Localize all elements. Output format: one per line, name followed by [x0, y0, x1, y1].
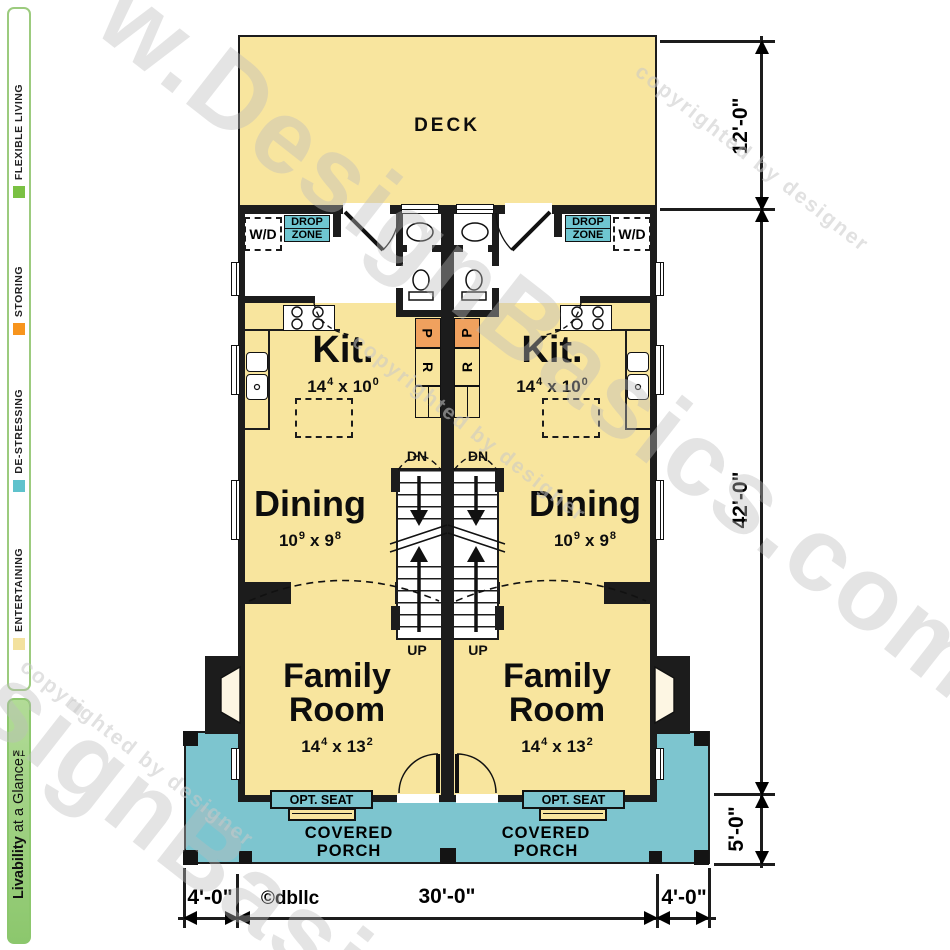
legend-label-flexible-living: FLEXIBLE LIVING	[13, 84, 25, 180]
left-opt-seat-label: OPT. SEAT	[290, 793, 354, 807]
dim-w: 14	[521, 737, 540, 756]
porch-post-br	[694, 850, 709, 865]
dim-w: 14	[516, 377, 535, 396]
left-porch-label: COVERED PORCH	[269, 824, 429, 861]
right-porch-line1: COVERED	[466, 824, 626, 842]
left-wd-label: W/D	[249, 226, 276, 242]
livability-banner-text: Livability at a Glance™	[11, 742, 27, 899]
right-porch-label: COVERED PORCH	[466, 824, 626, 861]
right-island	[542, 398, 600, 438]
right-stair-break-band	[454, 524, 497, 556]
porch-post-tl	[183, 731, 198, 746]
left-drop-zone: DROP ZONE	[284, 215, 330, 242]
left-bath-stub-b	[432, 245, 441, 252]
right-bath-bottom-wall	[454, 310, 499, 317]
left-bath-wall-lower	[396, 288, 403, 310]
right-kitchen-label: Kit.	[472, 332, 632, 369]
dim-ws: 4	[321, 736, 327, 748]
left-porch-line2: PORCH	[269, 842, 429, 860]
left-family-label-1: Family	[257, 660, 417, 693]
left-island	[295, 398, 353, 438]
dim-label-right-offset: 4'-0"	[654, 886, 714, 910]
right-stair-stub-top	[495, 468, 504, 492]
right-family-window	[655, 748, 664, 780]
left-mudroom-window	[231, 262, 240, 296]
right-wd-label: W/D	[618, 226, 645, 242]
right-kitchen-window	[655, 345, 664, 395]
left-seat-bench	[288, 808, 356, 821]
right-stair-stub-bottom	[495, 606, 504, 630]
right-bath-wall	[492, 214, 499, 266]
right-opt-seat: OPT. SEAT	[522, 790, 625, 809]
right-bath-stub-a	[488, 245, 497, 252]
dim-sep: x	[547, 377, 556, 396]
livability-banner-rest: at a Glance™	[11, 742, 27, 836]
dim-w: 10	[554, 531, 573, 550]
right-fireplace	[655, 656, 690, 734]
left-stair-break-band	[398, 524, 441, 556]
legend-label-storing: STORING	[13, 266, 25, 317]
dim-d: 9	[599, 531, 608, 550]
dim-ext-house-top	[660, 208, 775, 211]
right-stove	[560, 305, 612, 331]
dim-label-copyright: ©dbllc	[250, 888, 330, 910]
left-counter-edge-b	[245, 428, 270, 430]
left-stairs-dn-label: DN	[399, 450, 435, 464]
dim-label-porch-depth: 5'-0"	[725, 789, 749, 869]
livability-banner-bold: Livability	[11, 837, 27, 900]
right-dining-stub-outer	[604, 582, 650, 604]
right-dining-dims: 109x98	[505, 530, 665, 551]
right-front-door-opening	[456, 794, 498, 803]
left-family-label-2: Room	[257, 694, 417, 727]
porch-post-bl	[183, 850, 198, 865]
dim-d: 13	[347, 737, 366, 756]
left-bath-stub-a	[398, 245, 407, 252]
porch-post-center	[440, 848, 456, 864]
dim-sep: x	[310, 531, 319, 550]
dim-sep: x	[338, 377, 347, 396]
dim-ds: 8	[335, 530, 341, 542]
dim-label-left-offset: 4'-0"	[180, 886, 240, 910]
legend-swatch-de-stressing	[13, 480, 25, 492]
left-bath-wall	[396, 214, 403, 266]
left-drop-zone-line2: ZONE	[285, 229, 329, 241]
left-kitchen-dims: 144x100	[263, 376, 423, 397]
right-seat-bench	[539, 808, 607, 821]
dim-d: 13	[567, 737, 586, 756]
legend-swatch-entertaining	[13, 638, 25, 650]
dim-w: 10	[279, 531, 298, 550]
left-opt-seat: OPT. SEAT	[270, 790, 373, 809]
left-stair-stub-bottom	[391, 606, 400, 630]
left-stove	[283, 305, 335, 331]
dim-ws: 9	[574, 530, 580, 542]
dim-ds: 8	[610, 530, 616, 542]
right-family-dims: 144x132	[477, 736, 637, 757]
left-stair-stub-top	[391, 468, 400, 492]
right-mudroom-wall	[580, 296, 650, 303]
dim-label-deck-depth: 12'-0"	[729, 86, 753, 166]
porch-post-b4	[649, 851, 662, 864]
right-stairs-dn-label: DN	[460, 450, 496, 464]
left-fireplace	[205, 656, 240, 734]
left-stairs-up-label: UP	[399, 644, 435, 658]
dim-sep: x	[585, 531, 594, 550]
dim-d: 9	[324, 531, 333, 550]
dim-ws: 4	[327, 376, 333, 388]
legend-label-entertaining: ENTERTAINING	[13, 548, 25, 632]
dim-ds: 2	[367, 736, 373, 748]
dim-w: 14	[301, 737, 320, 756]
legend-label-de-stressing: DE-STRESSING	[13, 389, 25, 474]
legend-swatch-storing	[13, 323, 25, 335]
left-entry-stub	[333, 207, 341, 237]
dim-ds: 0	[582, 376, 588, 388]
right-stairs-up-label: UP	[460, 644, 496, 658]
left-dining-stub-outer	[245, 582, 291, 604]
right-counter-edge-b	[625, 428, 650, 430]
right-opt-seat-label: OPT. SEAT	[542, 793, 606, 807]
dim-d: 10	[562, 377, 581, 396]
left-dining-label: Dining	[230, 486, 390, 521]
right-family-label-1: Family	[477, 660, 637, 693]
floor-plan-page: FLEXIBLE LIVING STORING DE-STRESSING ENT…	[0, 0, 950, 950]
right-washer-dryer: W/D	[613, 217, 651, 251]
left-washer-dryer: W/D	[244, 217, 282, 251]
dim-sep: x	[332, 737, 341, 756]
dim-ds: 2	[587, 736, 593, 748]
right-dining-label: Dining	[505, 486, 665, 521]
left-family-dims: 144x132	[257, 736, 417, 757]
left-bath-window	[401, 204, 439, 214]
porch-post-b2	[239, 851, 252, 864]
dim-line-bottom	[178, 917, 716, 920]
porch-post-tr	[694, 731, 709, 746]
left-porch-line1: COVERED	[269, 824, 429, 842]
dim-ext-deck-top	[660, 40, 775, 43]
left-family-window	[231, 748, 240, 780]
dim-ws: 4	[536, 376, 542, 388]
left-mudroom-wall	[245, 296, 315, 303]
right-family-label-2: Room	[477, 694, 637, 727]
left-kitchen-label: Kit.	[263, 332, 423, 369]
dim-label-house-depth: 42'-0"	[729, 460, 753, 540]
deck-label: DECK	[367, 117, 527, 136]
left-front-door-opening	[397, 794, 439, 803]
left-bath-bottom-wall	[396, 310, 441, 317]
right-mudroom-window	[655, 262, 664, 296]
legend-item-storing: STORING	[7, 235, 31, 335]
right-porch-line2: PORCH	[466, 842, 626, 860]
right-drop-zone: DROP ZONE	[565, 215, 611, 242]
dim-line-right	[760, 36, 763, 868]
left-kitchen-window	[231, 345, 240, 395]
right-drop-zone-line1: DROP	[566, 216, 610, 229]
right-kitchen-dims: 144x100	[472, 376, 632, 397]
dim-label-width: 30'-0"	[397, 885, 497, 909]
dim-sep: x	[552, 737, 561, 756]
legend-item-entertaining: ENTERTAINING	[7, 518, 31, 650]
right-entry-stub	[554, 207, 562, 237]
left-deck-door-opening	[343, 203, 390, 216]
left-dining-dims: 109x98	[230, 530, 390, 551]
right-drop-zone-line2: ZONE	[566, 229, 610, 241]
right-bath-wall-lower	[492, 288, 499, 310]
dim-d: 10	[353, 377, 372, 396]
left-drop-zone-line1: DROP	[285, 216, 329, 229]
right-deck-door-opening	[505, 203, 552, 216]
legend-item-de-stressing: DE-STRESSING	[7, 362, 31, 492]
livability-banner: Livability at a Glance™	[7, 698, 31, 944]
dim-ds: 0	[373, 376, 379, 388]
legend-swatch-flexible-living	[13, 186, 25, 198]
right-bath-stub-b	[454, 245, 463, 252]
dim-w: 14	[307, 377, 326, 396]
legend-item-flexible-living: FLEXIBLE LIVING	[7, 48, 31, 198]
right-bath-window	[456, 204, 494, 214]
dim-ws: 4	[541, 736, 547, 748]
dim-ws: 9	[299, 530, 305, 542]
